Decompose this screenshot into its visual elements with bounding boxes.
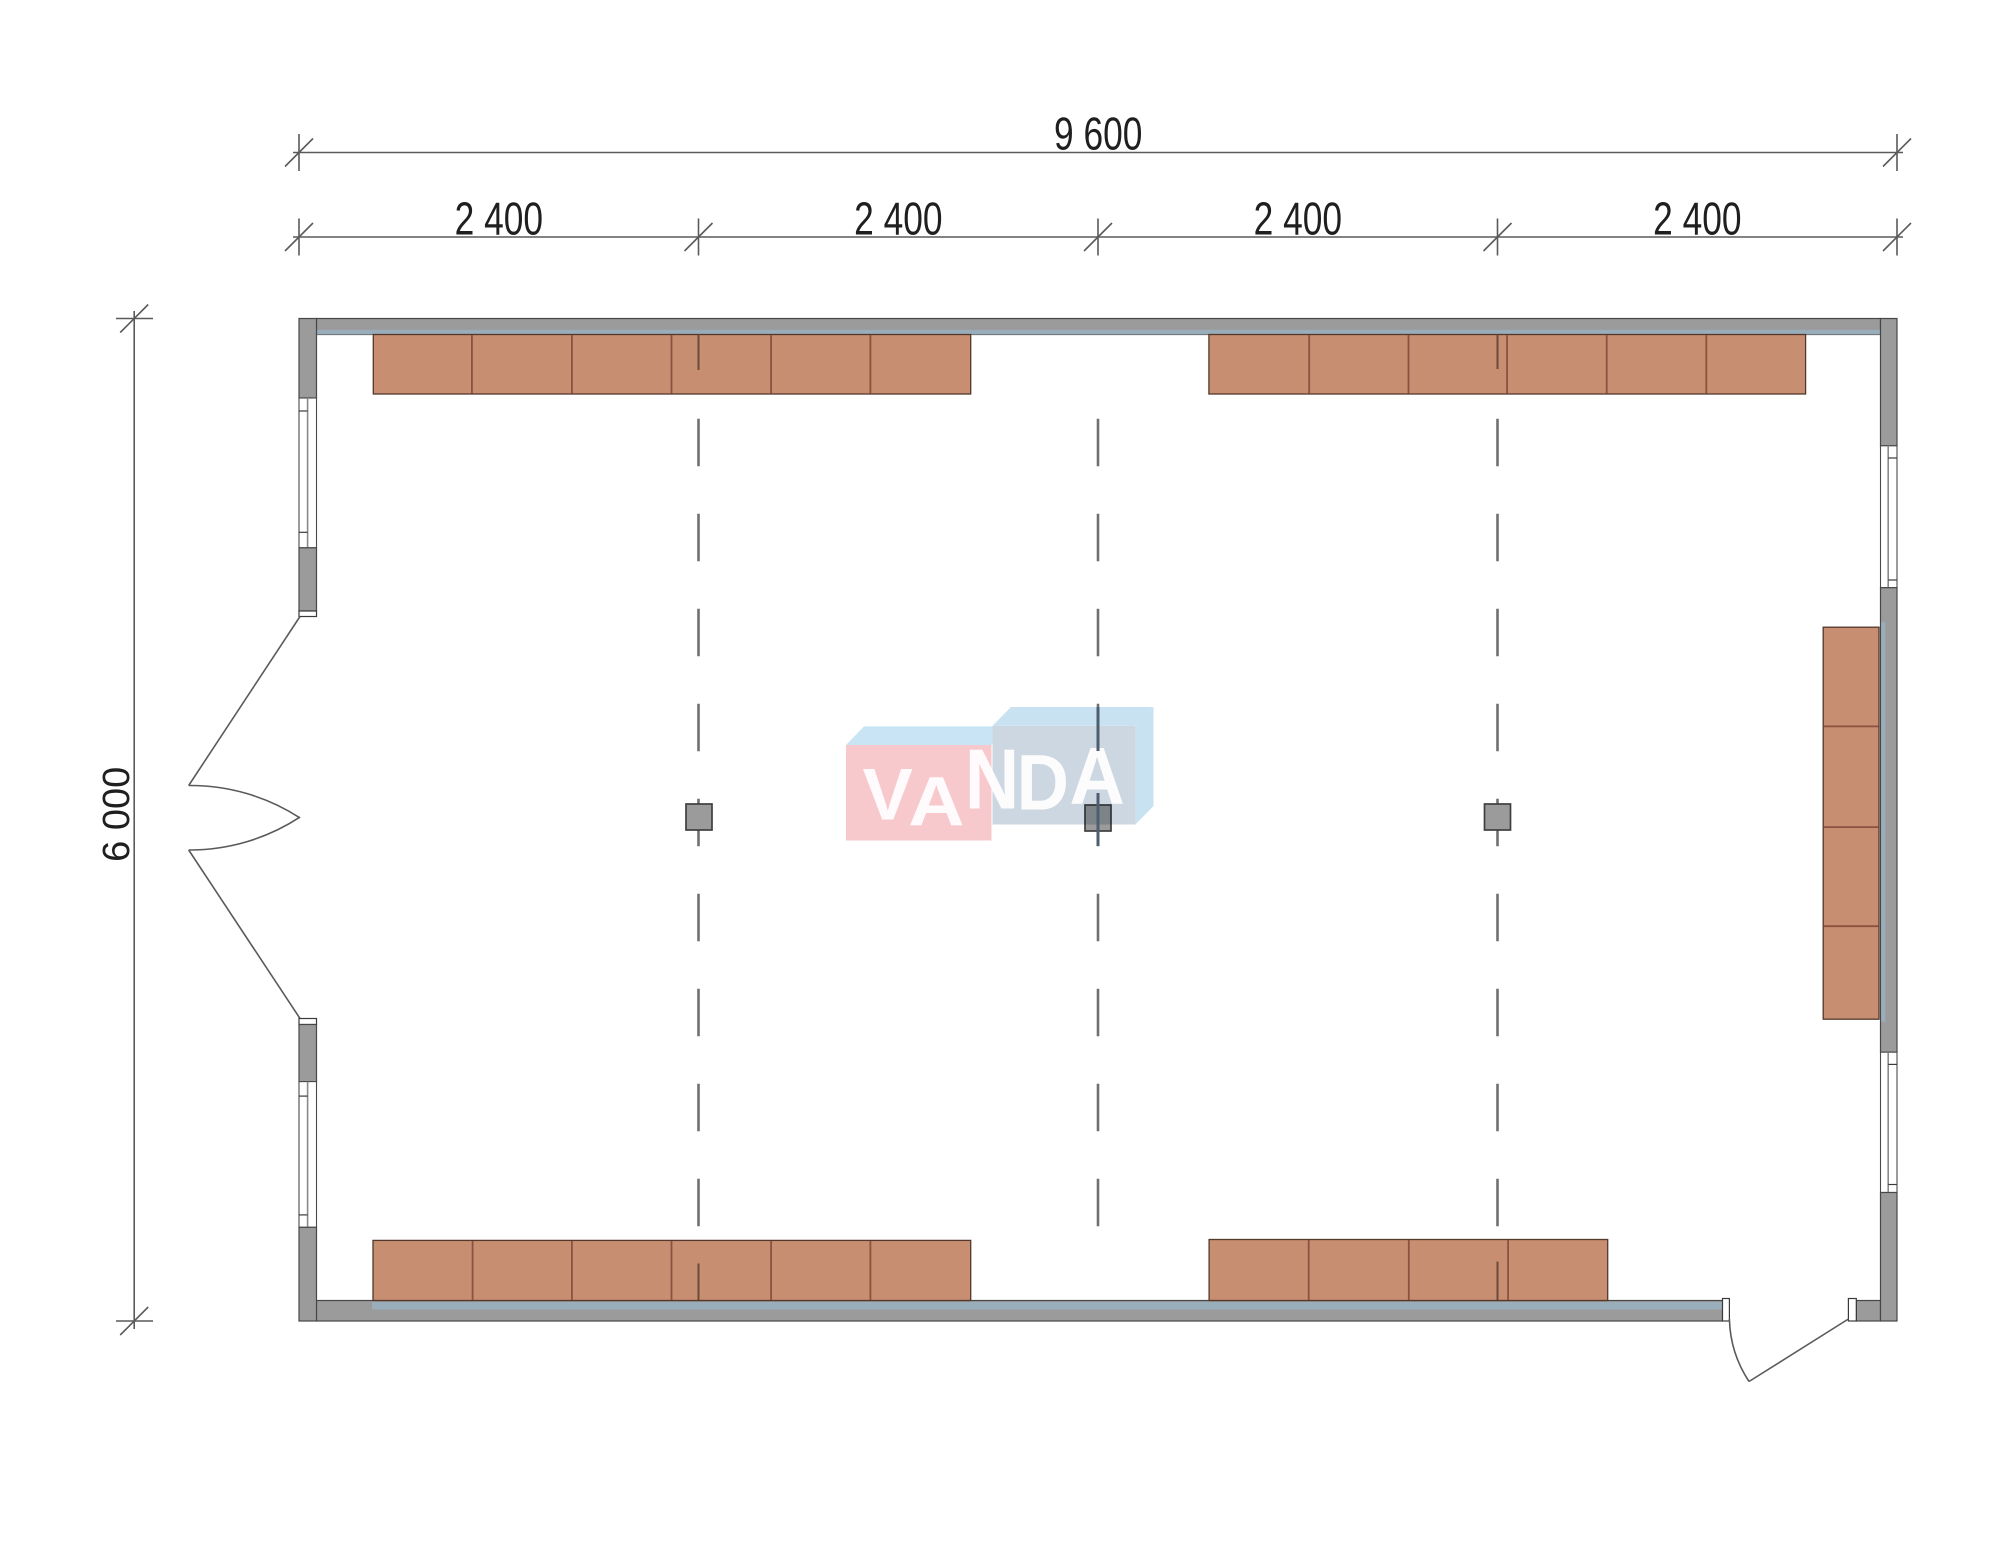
svg-text:6 000: 6 000 (96, 767, 138, 862)
svg-text:2 400: 2 400 (1254, 193, 1342, 245)
svg-text:D: D (1017, 739, 1069, 827)
svg-text:2 400: 2 400 (1653, 193, 1741, 245)
svg-text:V: V (862, 753, 913, 835)
svg-text:2 400: 2 400 (854, 193, 942, 245)
svg-text:2 400: 2 400 (455, 193, 543, 245)
svg-text:A: A (908, 762, 964, 840)
svg-text:9 600: 9 600 (1054, 108, 1142, 160)
svg-text:N: N (965, 732, 1019, 828)
